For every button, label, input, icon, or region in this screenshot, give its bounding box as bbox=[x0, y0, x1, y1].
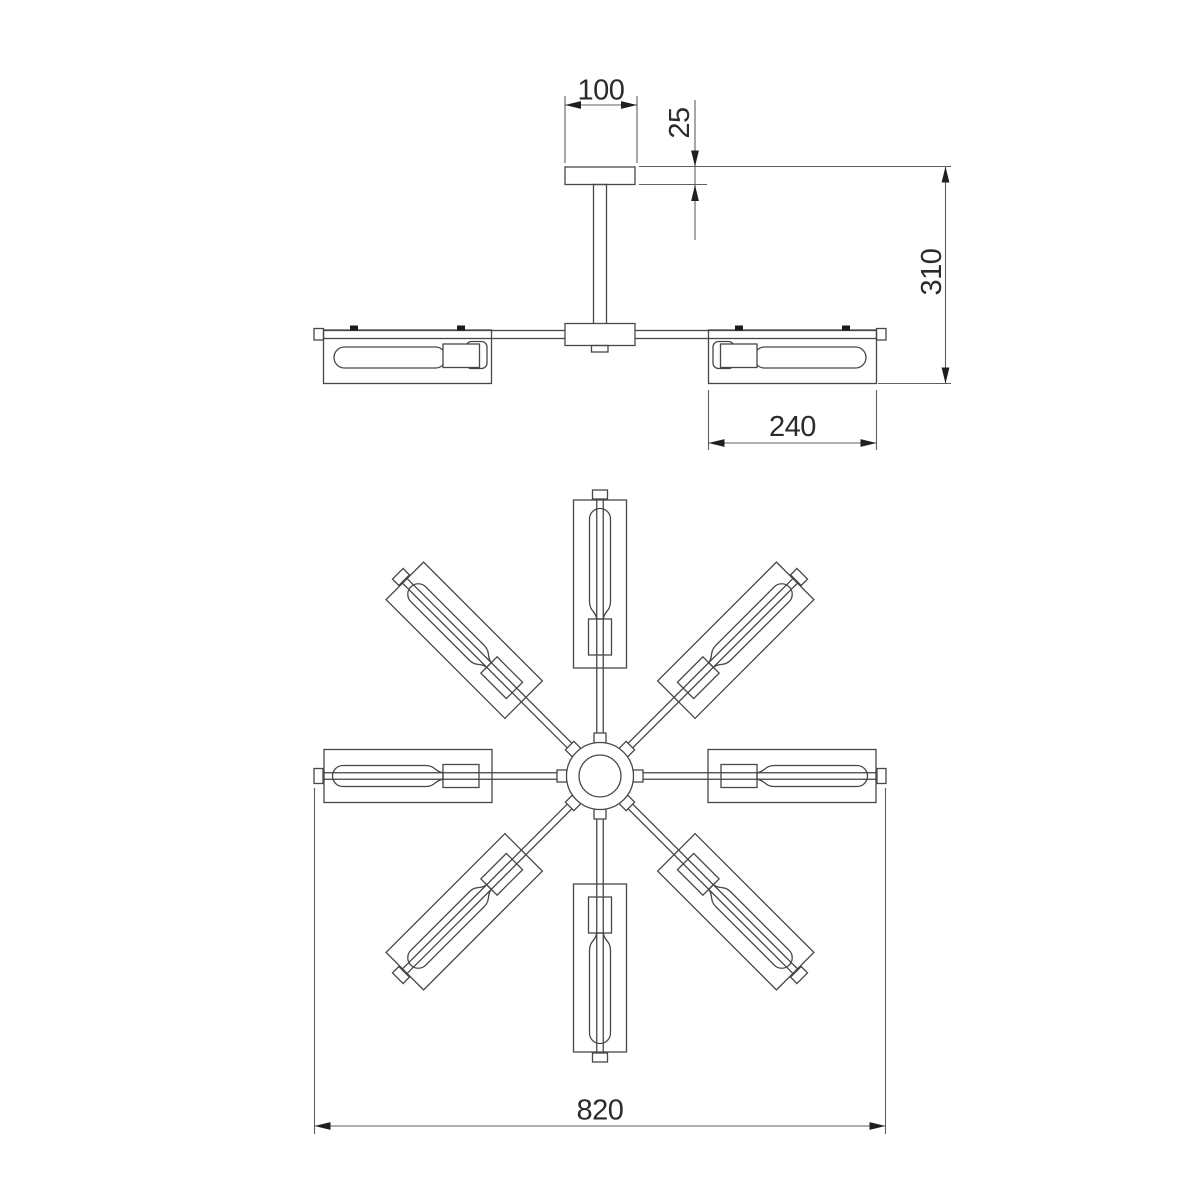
dimensions bbox=[315, 96, 952, 1134]
dimension-overall-diameter bbox=[315, 788, 886, 1134]
arm-southwest bbox=[379, 779, 597, 997]
label-canopy-width: 100 bbox=[578, 75, 625, 107]
arm-northwest bbox=[379, 555, 597, 773]
dimension-labels: 100 25 310 240 820 bbox=[577, 75, 948, 1127]
hub-bottom-tab bbox=[592, 346, 609, 353]
shade-left bbox=[324, 326, 492, 384]
hanger-stem bbox=[594, 185, 607, 325]
arm-south bbox=[574, 807, 627, 1062]
arm-north bbox=[574, 490, 627, 745]
ceiling-canopy bbox=[565, 167, 635, 185]
arm-west bbox=[314, 750, 569, 803]
dimension-overall-height bbox=[639, 167, 951, 384]
drawing-canvas: 100 25 310 240 820 bbox=[0, 0, 1200, 1200]
label-overall-height: 310 bbox=[916, 249, 948, 296]
side-view bbox=[314, 167, 886, 384]
arm-southeast bbox=[603, 779, 821, 997]
technical-drawing: 100 25 310 240 820 bbox=[0, 0, 1200, 1200]
arm-northeast bbox=[603, 555, 821, 773]
center-body-outer-circle bbox=[567, 743, 634, 810]
label-canopy-height: 25 bbox=[664, 107, 696, 138]
bar-end-cap-right bbox=[877, 329, 887, 341]
plan-view bbox=[314, 490, 886, 1062]
center-hub bbox=[565, 324, 635, 346]
bar-end-cap-left bbox=[314, 329, 324, 341]
label-shade-length: 240 bbox=[769, 411, 816, 443]
arm-east bbox=[631, 750, 886, 803]
label-overall-diameter: 820 bbox=[577, 1095, 624, 1127]
shade-right bbox=[709, 326, 877, 384]
